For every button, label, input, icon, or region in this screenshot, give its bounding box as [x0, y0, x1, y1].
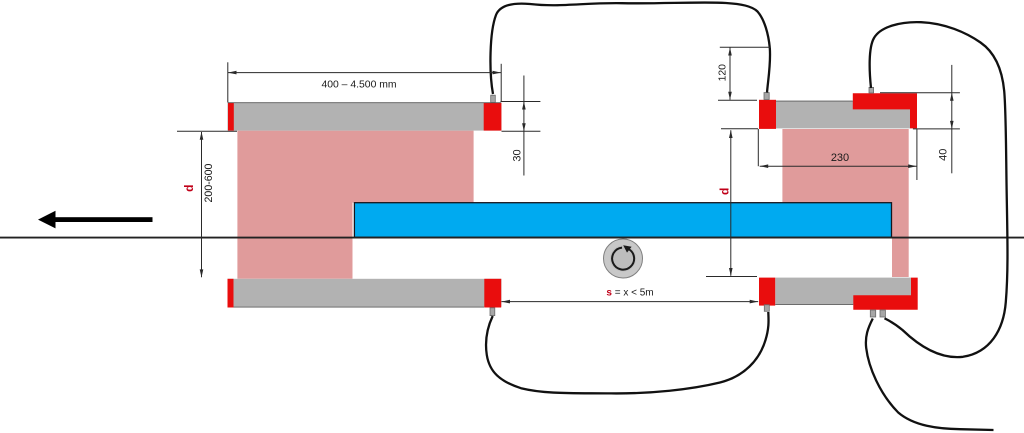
svg-text:30: 30 — [512, 149, 524, 161]
svg-text:d: d — [182, 185, 196, 192]
svg-text:s = x < 5m: s = x < 5m — [606, 288, 653, 299]
svg-text:230: 230 — [831, 152, 849, 164]
svg-text:40: 40 — [937, 149, 949, 161]
svg-text:120: 120 — [718, 64, 729, 82]
svg-text:400 – 4.500 mm: 400 – 4.500 mm — [321, 80, 396, 91]
svg-text:d: d — [718, 188, 732, 195]
svg-text:200-600: 200-600 — [203, 163, 215, 202]
